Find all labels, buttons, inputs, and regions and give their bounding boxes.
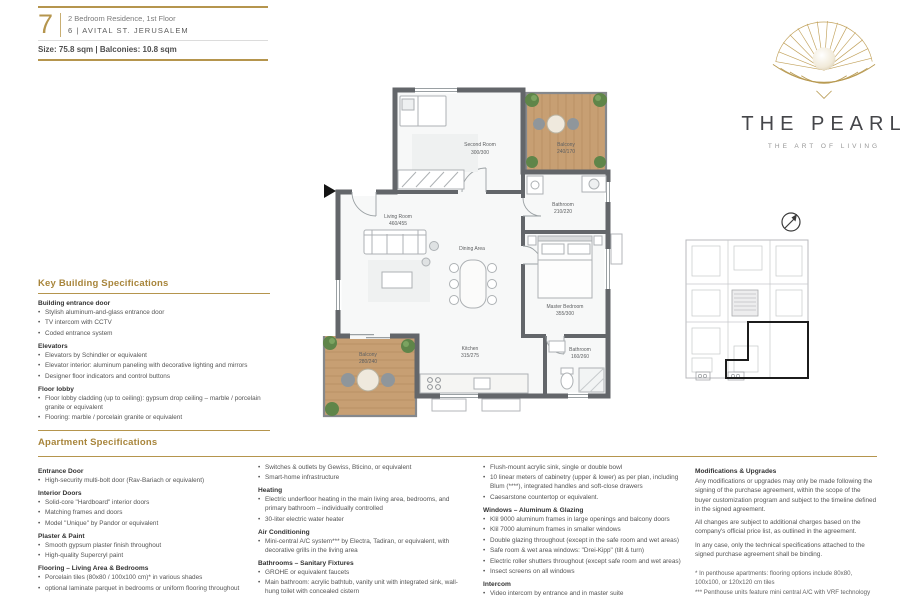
room-label: Bathroom <box>569 347 591 353</box>
spec-section-heading: Plaster & Paint <box>38 533 250 540</box>
legal-paragraph: All changes are subject to additional ch… <box>695 518 877 537</box>
spec-list: Flush-mount acrylic sink, single or doub… <box>483 464 686 503</box>
spec-item: High-quality Supercryl paint <box>38 552 250 561</box>
double-bed-icon <box>528 236 602 298</box>
spec-item: Insect screens on all windows <box>483 568 686 577</box>
spec-item: Model "Unique" by Pandor or equivalent <box>38 520 250 529</box>
spec-list: Klil 9000 aluminum frames in large openi… <box>483 516 686 577</box>
spec-item: Video intercom by entrance and in master… <box>483 590 686 598</box>
room-dims: 460/455 <box>389 221 407 227</box>
spec-item: Solid-core "Hardboard" interior doors <box>38 499 250 508</box>
spec-item: Elevator interior: aluminum paneling wit… <box>38 362 270 371</box>
divider <box>38 59 268 61</box>
spec-item: Caesarstone countertop or equivalent. <box>483 494 686 503</box>
spec-item: optional laminate parquet in bedrooms or… <box>38 585 250 594</box>
building-specs-title: Key Building Specifications <box>38 278 270 289</box>
spec-list: Electric underfloor heating in the main … <box>258 496 472 524</box>
spec-section-heading: Entrance Door <box>38 468 250 475</box>
footnote: * In penthouse apartments: flooring opti… <box>695 570 877 587</box>
spec-item: Flush-mount acrylic sink, single or doub… <box>483 464 686 473</box>
unit-number: 7 <box>38 11 53 38</box>
spec-item: Klil 9000 aluminum frames in large openi… <box>483 516 686 525</box>
spec-item: High-security multi-bolt door (Rav-Baria… <box>38 477 250 486</box>
room-dims: 210/220 <box>554 209 572 215</box>
spec-item: 10 linear meters of cabinetry (upper & l… <box>483 474 686 492</box>
spec-item: Mini-central A/C system*** by Electra, T… <box>258 538 472 556</box>
rug <box>412 134 478 172</box>
unit-address: 6 | AVITAL ST. JERUSALEM <box>68 25 189 36</box>
spec-section-heading: Intercom <box>483 581 686 588</box>
spec-item: Stylish aluminum-and-glass entrance door <box>38 309 270 318</box>
room-label: Living Room <box>384 214 412 220</box>
apartment-specs-header: Apartment Specifications <box>38 437 438 448</box>
spec-section: Floor lobby Floor lobby cladding (up to … <box>38 386 270 423</box>
spec-list: Solid-core "Hardboard" interior doorsMat… <box>38 499 250 529</box>
divider <box>38 430 270 431</box>
legal-paragraph: In any case, only the technical specific… <box>695 541 877 560</box>
entrance-opening <box>352 188 376 196</box>
spec-item: Safe room & wet area windows: "Drei-Kipp… <box>483 547 686 556</box>
wardrobe-icon <box>398 170 464 189</box>
spec-item: Double glazing throughout (except in the… <box>483 537 686 546</box>
entrance-arrow-icon <box>324 184 336 198</box>
washing-machine-icon <box>527 176 543 194</box>
kitchen-counter <box>420 374 528 393</box>
divider <box>38 293 270 294</box>
spec-list: Stylish aluminum-and-glass entrance door… <box>38 309 270 339</box>
spec-item: Klil 7000 aluminum frames in smaller win… <box>483 526 686 535</box>
spec-list: Smooth gypsum plaster finish throughoutH… <box>38 542 250 561</box>
spec-item: Electric roller shutters throughout (exc… <box>483 558 686 567</box>
toilet-icon <box>561 368 573 389</box>
brand-name: THE PEARL <box>738 113 910 136</box>
building-specs: Key Building Specifications Building ent… <box>38 278 270 437</box>
spec-section-heading: Air Conditioning <box>258 529 472 536</box>
room-dims: 280/240 <box>359 359 377 365</box>
stair-core-icon <box>732 290 758 316</box>
sink-icon <box>582 176 606 192</box>
brand-logo: THE PEARL THE ART OF LIVING <box>738 2 910 150</box>
key-plan <box>676 206 826 392</box>
spec-item: Porcelain tiles (80x80 / 100x100 cm)* in… <box>38 574 250 583</box>
unit-size: Size: 75.8 sqm | Balconies: 10.8 sqm <box>38 41 268 59</box>
room-label: Bathroom <box>552 202 574 208</box>
spec-section-heading: Heating <box>258 487 472 494</box>
spec-item: Smart-home infrastructure <box>258 474 472 483</box>
divider <box>60 13 61 37</box>
spec-item: Switches & outlets by Gewiss, Bticino, o… <box>258 464 472 473</box>
room-label: Dining Area <box>459 246 485 252</box>
sofa-icon <box>364 230 426 254</box>
spec-list: Video intercom by entrance and in master… <box>483 590 686 598</box>
spec-item: Designer floor indicators and control bu… <box>38 373 270 382</box>
spec-column-1: Entrance Door High-security multi-bolt d… <box>38 464 250 598</box>
spec-column-3: Flush-mount acrylic sink, single or doub… <box>483 464 686 598</box>
divider <box>38 456 877 457</box>
spec-list: High-security multi-bolt door (Rav-Baria… <box>38 477 250 486</box>
spec-item: Flooring: marble / porcelain granite or … <box>38 414 270 423</box>
balcony-top <box>526 93 606 170</box>
spec-section: Elevators Elevators by Schindler or equi… <box>38 343 270 382</box>
spec-item: Smooth gypsum plaster finish throughout <box>38 542 250 551</box>
unit-type: 2 Bedroom Residence, 1st Floor <box>68 13 189 24</box>
spec-list: Elevators by Schindler or equivalentElev… <box>38 352 270 382</box>
spec-list: Switches & outlets by Gewiss, Bticino, o… <box>258 464 472 483</box>
spec-list: Floor lobby cladding (up to ceiling): gy… <box>38 395 270 423</box>
spec-list: GROHE or equivalent faucetsMain bathroom… <box>258 569 472 598</box>
footnotes: * In penthouse apartments: flooring opti… <box>695 570 877 598</box>
room-dims: 315/275 <box>461 353 479 359</box>
spec-item: Elevators by Schindler or equivalent <box>38 352 270 361</box>
room-label: Balcony <box>557 142 575 148</box>
room-dims: 300/300 <box>471 150 489 156</box>
spec-column-2: Switches & outlets by Gewiss, Bticino, o… <box>258 464 472 598</box>
coffee-table-icon <box>382 272 412 288</box>
room-label: Master Bedroom <box>547 304 584 310</box>
room-dims: 160/260 <box>571 354 589 360</box>
dining-table-icon <box>450 260 497 308</box>
spec-section-heading: Flooring – Living Area & Bedrooms <box>38 565 250 572</box>
spec-item: Matching frames and doors <box>38 509 250 518</box>
north-arrow-icon <box>782 213 800 231</box>
spec-item: Floor lobby cladding (up to ceiling): gy… <box>38 395 270 413</box>
spec-section-heading: Floor lobby <box>38 386 270 393</box>
spec-item: Main bathroom: acrylic bathtub, vanity u… <box>258 579 472 597</box>
spec-item: Electric underfloor heating in the main … <box>258 496 472 514</box>
side-table-icon <box>430 242 439 251</box>
legal-paragraph: Any modifications or upgrades may only b… <box>695 477 877 514</box>
spec-item: TV intercom with CCTV <box>38 319 270 328</box>
apartment-specs-title: Apartment Specifications <box>38 437 438 448</box>
shower-icon <box>579 368 604 392</box>
spec-section-heading: Bathrooms – Sanitary Fixtures <box>258 560 472 567</box>
spec-section-heading: Windows – Aluminum & Glazing <box>483 507 686 514</box>
room-dims: 355/300 <box>556 311 574 317</box>
room-label: Balcony <box>359 352 377 358</box>
spec-item: Coded entrance system <box>38 330 270 339</box>
footnote: *** Penthouse units feature mini central… <box>695 589 877 598</box>
spec-section-heading: Interior Doors <box>38 490 250 497</box>
spec-section: Building entrance door Stylish aluminum-… <box>38 300 270 339</box>
spec-column-4: Modifications & Upgrades Any modificatio… <box>695 464 877 598</box>
side-table-icon <box>422 258 430 266</box>
room-dims: 240/170 <box>557 149 575 155</box>
spec-item: 30-liter electric water heater <box>258 516 472 525</box>
spec-section-heading: Modifications & Upgrades <box>695 468 877 475</box>
vanity-sink-icon <box>549 341 565 352</box>
pearl-shell-icon <box>754 2 894 106</box>
spec-item: GROHE or equivalent faucets <box>258 569 472 578</box>
spec-list: Mini-central A/C system*** by Electra, T… <box>258 538 472 556</box>
floor-plan: Second Room 300/300 Balcony 240/170 Bath… <box>320 84 632 434</box>
room-label: Kitchen <box>462 346 479 352</box>
spec-section-heading: Building entrance door <box>38 300 270 307</box>
spec-section-heading: Elevators <box>38 343 270 350</box>
spec-list: Porcelain tiles (80x80 / 100x100 cm)* in… <box>38 574 250 593</box>
unit-header: 7 2 Bedroom Residence, 1st Floor 6 | AVI… <box>38 6 268 61</box>
bed-icon <box>400 96 446 126</box>
brand-tagline: THE ART OF LIVING <box>738 143 910 150</box>
room-label: Second Room <box>464 142 496 148</box>
